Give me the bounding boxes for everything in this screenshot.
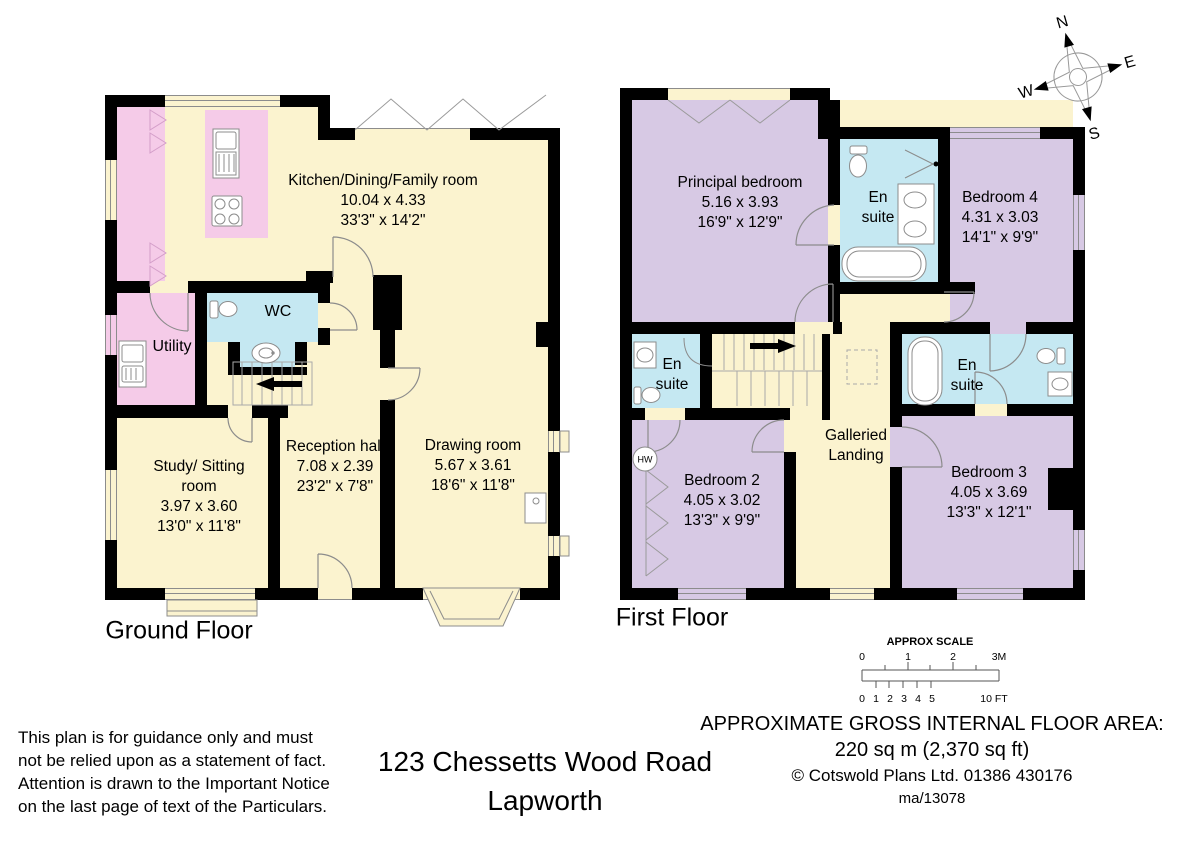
room-imperial: 18'6" x 11'8": [398, 476, 548, 496]
floor-area-block: APPROXIMATE GROSS INTERNAL FLOOR AREA: 2…: [700, 712, 1163, 810]
window: [957, 588, 1023, 600]
room-imperial: 16'9" x 12'9": [655, 213, 825, 233]
room-name: Reception hall: [279, 437, 391, 457]
room-name: Kitchen/Dining/Family room: [286, 171, 481, 191]
wall: [252, 405, 288, 418]
room-imperial: 33'3" x 14'2": [286, 211, 481, 231]
room-label-bedroom2: Bedroom 2 4.05 x 3.02 13'3" x 9'9": [657, 471, 787, 531]
room-imperial: 13'3" x 12'1": [914, 503, 1064, 523]
copyright: © Cotswold Plans Ltd. 01386 430176: [700, 763, 1163, 788]
wall: [380, 327, 395, 368]
wall: [105, 281, 150, 293]
compass-s: S: [1087, 125, 1102, 144]
compass-n: N: [1055, 13, 1071, 33]
disclaimer-line: not be relied upon as a statement of fac…: [18, 749, 330, 772]
room-metric: 7.08 x 2.39: [279, 457, 391, 477]
disclaimer: This plan is for guidance only and must …: [18, 726, 330, 818]
room-name: En suite: [851, 188, 905, 228]
wall: [548, 128, 560, 600]
window: [165, 588, 255, 600]
wall: [890, 467, 902, 588]
window: [105, 470, 117, 540]
room-label-drawing: Drawing room 5.67 x 3.61 18'6" x 11'8": [398, 436, 548, 496]
room-imperial: 13'0" x 11'8": [139, 517, 259, 537]
wall: [828, 282, 975, 294]
room-metric: 5.16 x 3.93: [655, 193, 825, 213]
window: [1073, 530, 1085, 570]
svg-text:0: 0: [859, 693, 865, 705]
room-name: Drawing room: [398, 436, 548, 456]
ground-floor-title: Ground Floor: [105, 617, 252, 646]
window: [830, 588, 874, 600]
folding-door-opening: [355, 128, 470, 140]
wall: [295, 342, 307, 365]
scale-title: APPROX SCALE: [887, 636, 974, 648]
stair-rail-wall: [822, 334, 830, 420]
compass-e: E: [1123, 53, 1138, 72]
wall: [318, 328, 330, 345]
wall: [620, 322, 795, 334]
room-imperial: 23'2" x 7'8": [279, 477, 391, 497]
wall: [1026, 322, 1073, 334]
wall: [890, 404, 975, 416]
wall: [318, 281, 330, 303]
wall: [890, 322, 990, 334]
svg-text:3M: 3M: [992, 651, 1007, 663]
first-floor-title: First Floor: [616, 604, 729, 633]
room-label-front-ensuite: En suite: [645, 355, 699, 395]
room-label-bedroom3: Bedroom 3 4.05 x 3.69 13'3" x 12'1": [914, 463, 1064, 523]
svg-text:2: 2: [887, 693, 893, 705]
address-line2: Lapworth: [378, 781, 712, 820]
floorplan-page: HW N E S W APPROX SCALE 0: [0, 0, 1200, 848]
wall: [318, 95, 330, 140]
room-imperial: 14'1" x 9'9": [940, 228, 1060, 248]
room-metric: 10.04 x 4.33: [286, 191, 481, 211]
window-opening: [668, 88, 790, 100]
wall: [536, 322, 560, 347]
wc-room: [240, 342, 295, 367]
wall: [700, 334, 712, 408]
wall: [228, 342, 240, 367]
kitchen-island: [205, 110, 268, 238]
wall: [1007, 404, 1073, 416]
window: [678, 588, 746, 600]
wall: [620, 88, 632, 600]
window: [548, 536, 560, 556]
room-label-back-ensuite: En suite: [940, 356, 994, 396]
room-metric: 3.97 x 3.60: [139, 497, 259, 517]
chimney-breast: [373, 275, 402, 330]
svg-text:1: 1: [873, 693, 879, 705]
wc-room: [207, 293, 318, 342]
room-name: Galleried Landing: [804, 426, 908, 466]
svg-text:10 FT: 10 FT: [980, 693, 1008, 705]
disclaimer-line: This plan is for guidance only and must: [18, 726, 330, 749]
plan-reference: ma/13078: [700, 788, 1163, 810]
wall: [833, 322, 842, 334]
area-value: 220 sq m (2,370 sq ft): [700, 737, 1163, 763]
room-label-principal: Principal bedroom 5.16 x 3.93 16'9" x 12…: [655, 173, 825, 233]
room-label-landing: Galleried Landing: [804, 426, 908, 466]
room-name: Bedroom 4: [940, 188, 1060, 208]
svg-text:2: 2: [950, 651, 956, 663]
room-label-study: Study/ Sitting room 3.97 x 3.60 13'0" x …: [139, 457, 259, 537]
room-metric: 4.05 x 3.69: [914, 483, 1064, 503]
disclaimer-line: Attention is drawn to the Important Noti…: [18, 772, 330, 795]
kitchen-units: [117, 107, 165, 281]
window: [548, 431, 560, 452]
svg-text:3: 3: [901, 693, 907, 705]
room-name: Bedroom 3: [914, 463, 1064, 483]
room-name: Bedroom 2: [657, 471, 787, 491]
disclaimer-line: on the last page of text of the Particul…: [18, 795, 330, 818]
room-name: Utility: [132, 337, 212, 357]
room-label-bedroom4: Bedroom 4 4.31 x 3.03 14'1" x 9'9": [940, 188, 1060, 248]
bay-window-opening: [423, 588, 520, 600]
wall: [620, 408, 645, 420]
room-label-utility: Utility: [132, 337, 212, 357]
room-label-wc: WC: [265, 302, 292, 322]
svg-text:4: 4: [915, 693, 921, 705]
scale-bar: APPROX SCALE 0 1 2 3M 0 1 2 3 4 5 10 FT: [859, 636, 1008, 705]
room-name: En suite: [940, 356, 994, 396]
svg-text:0: 0: [859, 651, 865, 663]
front-door-opening: [318, 588, 352, 600]
wall: [228, 367, 307, 375]
wall: [828, 100, 840, 205]
room-label-principal-ensuite: En suite: [851, 188, 905, 228]
room-name: Principal bedroom: [655, 173, 825, 193]
wall: [685, 408, 790, 420]
window: [105, 315, 117, 355]
room-label-reception: Reception hall 7.08 x 2.39 23'2" x 7'8": [279, 437, 391, 497]
room-imperial: 13'3" x 9'9": [657, 511, 787, 531]
room-name: WC: [265, 302, 292, 322]
property-address: 123 Chessetts Wood Road Lapworth: [378, 742, 712, 820]
window: [105, 160, 117, 220]
porch: [167, 600, 257, 616]
room-metric: 5.67 x 3.61: [398, 456, 548, 476]
svg-text:5: 5: [929, 693, 935, 705]
window: [950, 127, 1040, 139]
room-metric: 4.31 x 3.03: [940, 208, 1060, 228]
window: [165, 95, 280, 107]
room-metric: 4.05 x 3.02: [657, 491, 787, 511]
doorway: [990, 322, 1026, 334]
address-line1: 123 Chessetts Wood Road: [378, 742, 712, 781]
wall: [306, 271, 333, 283]
window: [1073, 195, 1085, 250]
area-heading: APPROXIMATE GROSS INTERNAL FLOOR AREA:: [700, 712, 1163, 737]
room-name: Study/ Sitting room: [139, 457, 259, 497]
room-name: En suite: [645, 355, 699, 395]
svg-text:1: 1: [905, 651, 911, 663]
room-label-kitchen: Kitchen/Dining/Family room 10.04 x 4.33 …: [286, 171, 481, 231]
wall: [105, 405, 228, 418]
